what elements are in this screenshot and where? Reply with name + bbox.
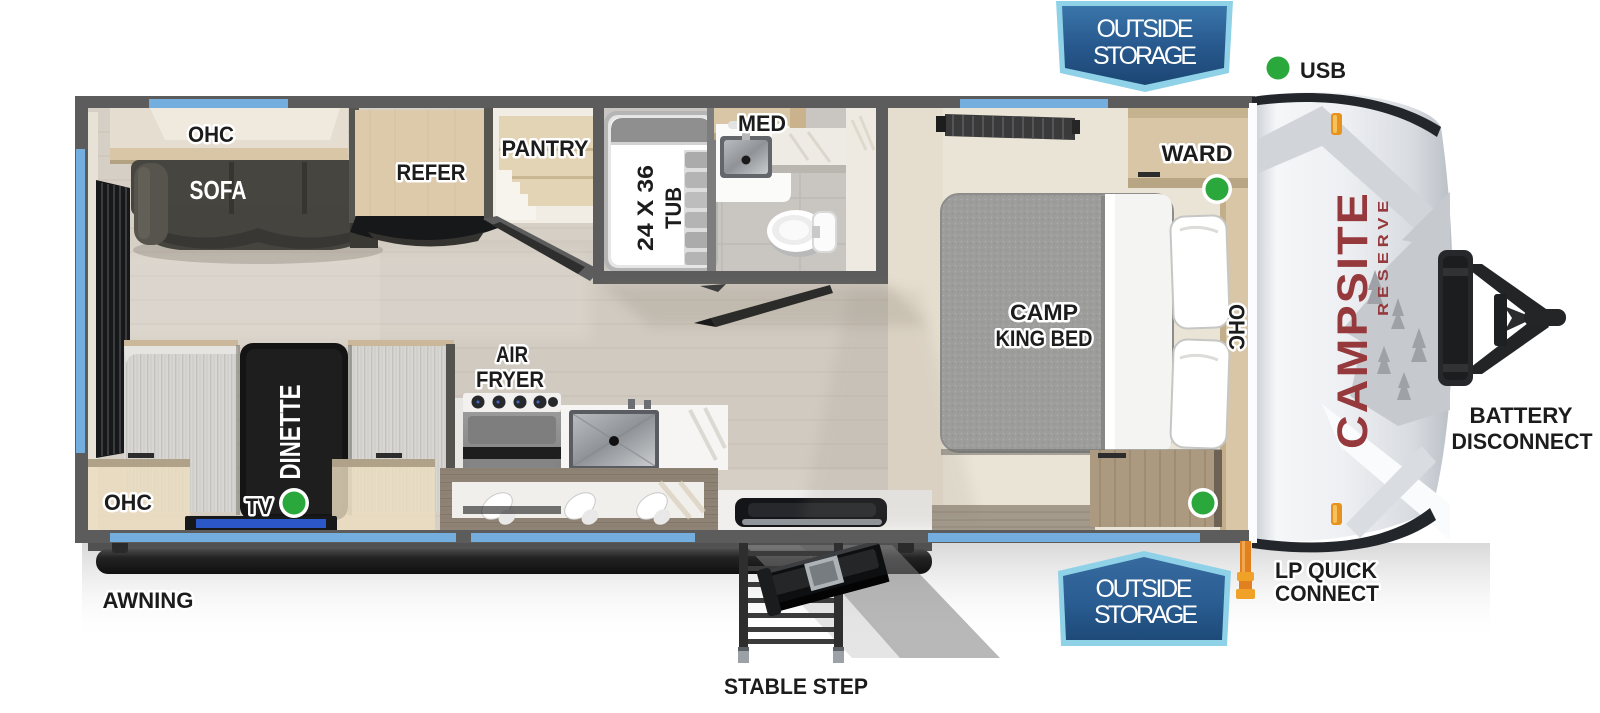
svg-text:RESERVE: RESERVE [1375, 196, 1392, 316]
svg-text:DINETTE: DINETTE [275, 385, 307, 480]
svg-text:FRYER: FRYER [476, 367, 544, 392]
svg-text:AWNING: AWNING [103, 588, 194, 613]
svg-text:STORAGE: STORAGE [1094, 601, 1198, 629]
svg-text:STABLE STEP: STABLE STEP [724, 674, 868, 699]
svg-text:CONNECT: CONNECT [1275, 581, 1380, 606]
svg-text:TUB: TUB [661, 187, 686, 229]
svg-text:KING BED: KING BED [996, 326, 1093, 351]
svg-text:USB: USB [1300, 58, 1346, 83]
svg-text:MED: MED [738, 111, 786, 136]
svg-text:REFER: REFER [397, 160, 466, 185]
svg-text:24 X 36: 24 X 36 [633, 165, 658, 251]
svg-text:DISCONNECT: DISCONNECT [1452, 429, 1594, 454]
svg-text:STORAGE: STORAGE [1093, 42, 1197, 70]
svg-text:PANTRY: PANTRY [502, 136, 589, 161]
svg-text:BATTERY: BATTERY [1470, 403, 1573, 428]
svg-text:SOFA: SOFA [190, 175, 247, 205]
svg-text:OUTSIDE: OUTSIDE [1096, 575, 1193, 603]
svg-text:TV: TV [246, 494, 273, 519]
svg-text:OUTSIDE: OUTSIDE [1097, 15, 1194, 43]
svg-text:OHC: OHC [1224, 304, 1249, 350]
svg-text:LP QUICK: LP QUICK [1275, 558, 1377, 583]
svg-text:OHC: OHC [188, 122, 234, 147]
svg-text:WARD: WARD [1162, 141, 1233, 166]
svg-text:CAMPSITE: CAMPSITE [1329, 191, 1377, 449]
svg-text:OHC: OHC [104, 490, 152, 515]
svg-text:AIR: AIR [496, 342, 528, 367]
svg-text:CAMP: CAMP [1010, 300, 1078, 325]
